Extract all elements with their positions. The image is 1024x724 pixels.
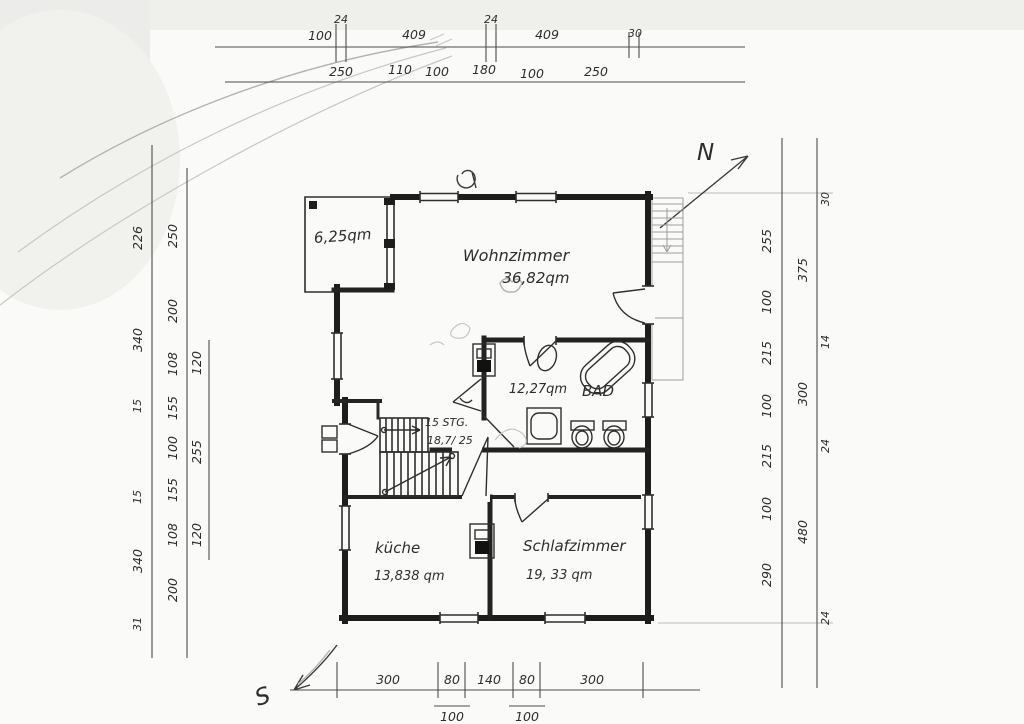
dim-label: 100 (440, 709, 464, 724)
stairs-label-count: 15 STG. (425, 416, 468, 429)
dim-label: 100 (759, 497, 774, 521)
room-label-kitchen-area: 13,838 qm (374, 569, 445, 584)
dim-label: 155 (165, 478, 180, 502)
dim-label: 409 (402, 27, 426, 42)
room-label-living: Wohnzimmer (463, 246, 571, 265)
dim-label: 24 (484, 13, 498, 26)
stair-up-arrow (384, 426, 420, 434)
south-arrow: S (252, 645, 337, 712)
room-label-balcony-area: 6,25qm (313, 225, 372, 247)
room-label-bedroom: Schlafzimmer (523, 537, 626, 555)
dim-label: 255 (189, 440, 204, 464)
dim-label: 255 (759, 229, 774, 253)
south-label: S (252, 682, 274, 711)
dim-label: 300 (376, 672, 400, 687)
dim-label: 100 (759, 290, 774, 314)
dim-label: 30 (819, 192, 832, 206)
dim-label: 215 (759, 341, 774, 365)
dim-label: 24 (819, 439, 832, 453)
dim-label: 108 (165, 523, 180, 547)
dim-label: 108 (165, 352, 180, 376)
dim-label: 100 (425, 64, 449, 79)
pencil-scribbles (430, 171, 526, 448)
dim-label: 110 (388, 62, 412, 77)
entry-step (322, 440, 337, 452)
scanned-floor-plan-page: 100 24 409 24 409 30 250 110 100 180 100… (0, 0, 1024, 724)
dim-label: 250 (165, 224, 180, 248)
dim-label: 100 (515, 709, 539, 724)
dim-chain-top-inner: 250 110 100 180 100 250 (225, 62, 745, 91)
toilet (571, 421, 594, 448)
exterior-stairs (652, 198, 683, 380)
entry-step (322, 426, 337, 438)
dim-chain-left-third: 120 255 120 (189, 340, 217, 560)
dim-label: 409 (535, 27, 559, 42)
north-arrow: N (660, 140, 748, 228)
entry-door-swing (348, 424, 378, 454)
north-label: N (697, 140, 714, 166)
floor-plan-drawing: 100 24 409 24 409 30 250 110 100 180 100… (0, 0, 1024, 724)
dim-chain-bottom: 300 80 140 80 300 100 100 (290, 662, 700, 724)
room-label-bedroom-area: 19, 33 qm (526, 568, 592, 583)
dim-label: 250 (329, 64, 353, 79)
room-label-bath: BAD (582, 382, 614, 400)
dim-label: 290 (759, 563, 774, 587)
dim-chain-left-inner: 250 200 108 155 100 155 108 200 (165, 168, 195, 658)
interior-stairs (380, 418, 458, 496)
dim-label: 480 (795, 520, 810, 544)
dim-label: 100 (308, 28, 332, 43)
dim-label: 215 (759, 444, 774, 468)
dim-label: 100 (759, 394, 774, 418)
bedroom-door-swing (515, 499, 548, 522)
stairs-label-ratio: 18,7/ 25 (427, 434, 473, 447)
dim-label: 24 (334, 13, 348, 26)
bath-door-symbol (453, 379, 481, 411)
dim-label: 250 (584, 64, 608, 79)
dim-chain-right-inner: 255 100 215 100 215 100 290 (759, 138, 790, 688)
dim-label: 300 (795, 382, 810, 406)
room-label-bath-area: 12,27qm (509, 382, 567, 397)
dim-label: 100 (165, 436, 180, 460)
dim-label: 340 (130, 549, 145, 573)
terrace-door-swing (613, 289, 645, 323)
terrace-door-gap (641, 286, 655, 324)
dim-label: 120 (189, 523, 204, 547)
dim-label: 31 (131, 617, 144, 631)
entry-door-gap (338, 424, 352, 454)
dim-label: 226 (130, 226, 145, 250)
dim-chain-right-outer: 30 375 14 300 24 480 24 (795, 138, 832, 688)
dim-label: 80 (444, 672, 460, 687)
dim-label: 24 (819, 611, 832, 625)
room-label-kitchen: küche (375, 539, 420, 557)
dim-label: 180 (472, 62, 496, 77)
dim-label: 200 (165, 299, 180, 323)
dim-label: 14 (819, 335, 832, 349)
dim-label: 340 (130, 328, 145, 352)
dim-label: 100 (520, 66, 544, 81)
lamp-scribble (457, 171, 476, 188)
bidet (603, 421, 626, 448)
dim-label: 300 (580, 672, 604, 687)
dim-label: 80 (519, 672, 535, 687)
dim-label: 15 (131, 399, 144, 413)
wall-sink (534, 343, 559, 373)
stair-run-line (385, 457, 451, 492)
dim-label: 200 (165, 578, 180, 602)
room-label-living-area: 36,82qm (502, 269, 569, 287)
dim-label: 15 (131, 490, 144, 504)
dim-label: 30 (628, 27, 642, 40)
dim-label: 155 (165, 396, 180, 420)
sink (527, 408, 561, 444)
dim-label: 120 (189, 351, 204, 375)
dim-label: 140 (477, 672, 501, 687)
dim-label: 375 (795, 258, 810, 282)
chimney-hall (473, 344, 495, 376)
